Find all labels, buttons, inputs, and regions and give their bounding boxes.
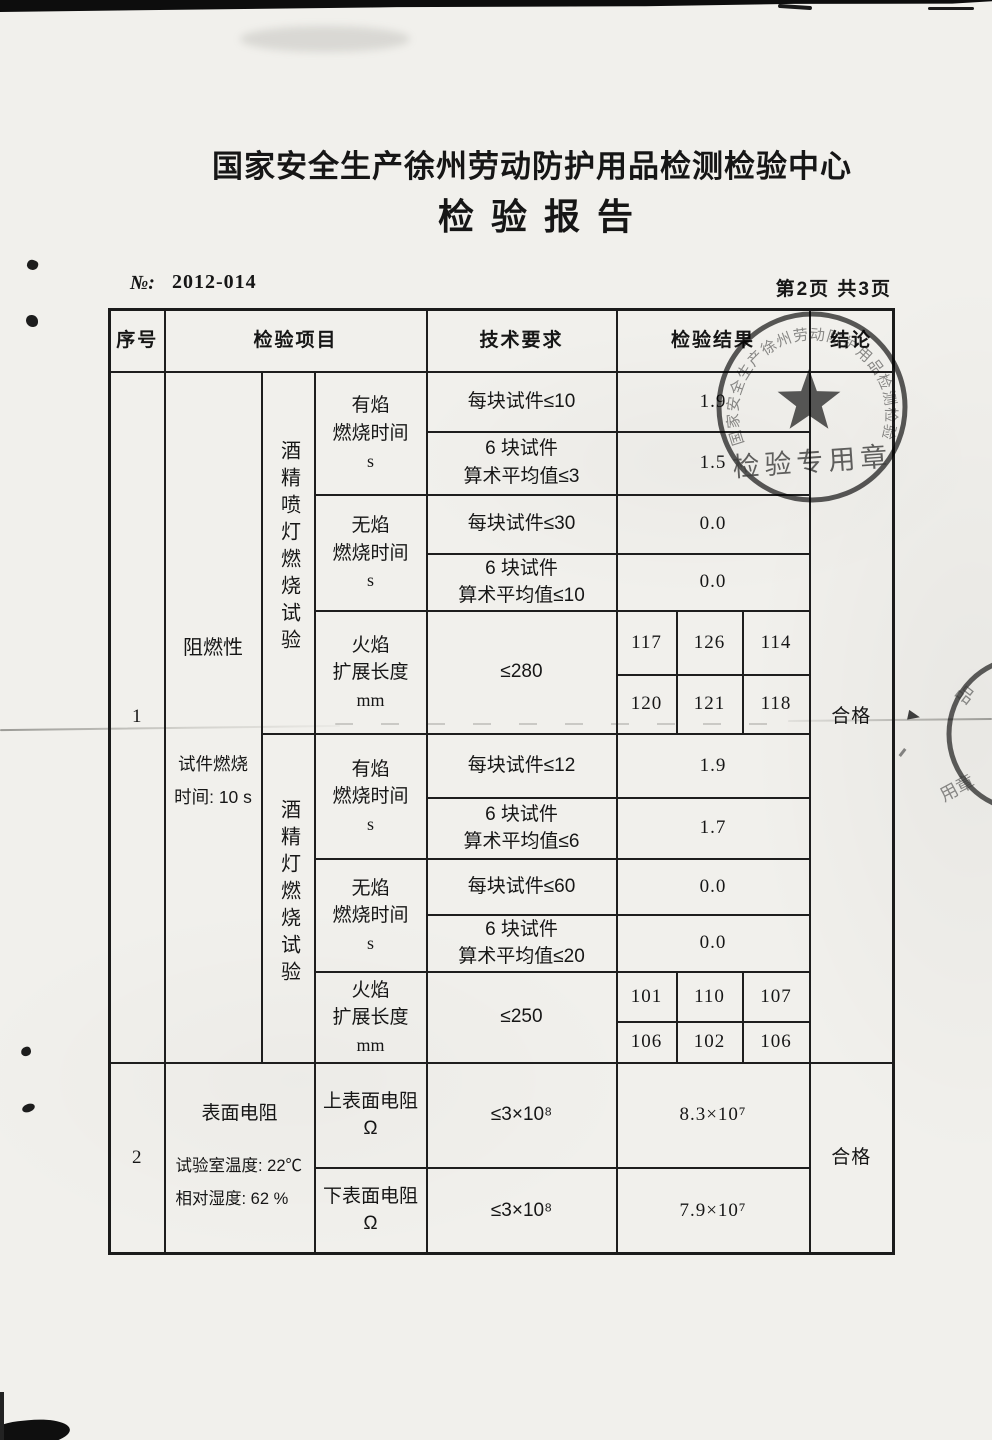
- item-name: 表面电阻: [166, 1100, 314, 1128]
- scan-corner-mark: [0, 1416, 71, 1440]
- result-cell: 1.9: [617, 734, 810, 798]
- param-line: 扩展长度: [316, 659, 426, 687]
- test-group-cell: 酒精灯燃烧试验: [262, 734, 315, 1063]
- requirement-cell: 6 块试件 算术平均值≤6: [427, 798, 617, 859]
- result-cell: 7.9×10⁷: [617, 1168, 810, 1254]
- param-cell: 火焰 扩展长度 mm: [315, 972, 427, 1063]
- requirement-cell: ≤3×10⁸: [427, 1063, 617, 1168]
- requirement-line: 6 块试件: [428, 555, 616, 583]
- param-cell: 无焰 燃烧时间 s: [315, 859, 427, 972]
- item-note-line: 试件燃烧: [166, 748, 261, 781]
- requirement-line: 算术平均值≤6: [428, 828, 616, 856]
- result-cell: 114: [743, 611, 810, 675]
- requirement-cell: ≤280: [427, 611, 617, 734]
- crease-ink-mark: [907, 710, 921, 722]
- param-cell: 无焰 燃烧时间 s: [315, 495, 427, 611]
- param-unit: Ω: [316, 1210, 426, 1238]
- item-note: 试件燃烧 时间: 10 s: [166, 748, 261, 815]
- scan-speck: [21, 1102, 36, 1114]
- test-group-cell: 酒精喷灯燃烧试验: [262, 372, 315, 734]
- scan-speck: [26, 315, 38, 327]
- edge-partial-stamp: 品 用章: [930, 642, 992, 834]
- stamp-star-icon: [778, 369, 841, 429]
- header-seq: 序号: [110, 310, 165, 372]
- scan-edge-artifact: [928, 7, 974, 10]
- result-cell: 121: [677, 675, 743, 734]
- item-content: 阻燃性 试件燃烧 时间: 10 s: [166, 376, 261, 1059]
- param-cell: 有焰 燃烧时间 s: [315, 734, 427, 859]
- scanned-report-page: 国家安全生产徐州劳动防护用品检测检验中心 检验报告 №: 2012-014 第2…: [0, 0, 992, 1440]
- requirement-cell: 每块试件≤10: [427, 372, 617, 432]
- inspection-stamp: 国家安全生产徐州劳动防护用品检测检验中心 检验专用章: [697, 295, 929, 523]
- stamp-bottom-text: 检验专用章: [732, 441, 894, 482]
- result-cell: 101: [617, 972, 677, 1022]
- scan-speck: [20, 1046, 32, 1057]
- param-line: 扩展长度: [316, 1004, 426, 1032]
- result-cell: 106: [617, 1022, 677, 1063]
- scan-edge-artifact: [778, 4, 812, 10]
- table-row: 2 表面电阻 试验室温度: 22℃ 相对湿度: 62 % 上表面电阻 Ω ≤3×…: [110, 1063, 894, 1168]
- result-cell: 102: [677, 1022, 743, 1063]
- scan-corner-mark: [0, 1392, 4, 1440]
- param-line: 下表面电阻: [316, 1183, 426, 1211]
- header-requirement: 技术要求: [427, 310, 617, 372]
- item-name: 阻燃性: [166, 634, 261, 663]
- item-cell-1: 阻燃性 试件燃烧 时间: 10 s: [165, 372, 262, 1063]
- requirement-cell: 6 块试件 算术平均值≤20: [427, 915, 617, 972]
- requirement-line: 算术平均值≤10: [428, 582, 616, 610]
- param-unit: mm: [316, 1032, 426, 1058]
- param-line: 无焰: [316, 512, 426, 540]
- requirement-line: 算术平均值≤20: [428, 943, 616, 971]
- requirement-cell: 每块试件≤30: [427, 495, 617, 554]
- param-line: 燃烧时间: [316, 783, 426, 811]
- result-cell: 106: [743, 1022, 810, 1063]
- requirement-cell: ≤3×10⁸: [427, 1168, 617, 1254]
- param-line: 火焰: [316, 632, 426, 660]
- item-cell-2: 表面电阻 试验室温度: 22℃ 相对湿度: 62 %: [165, 1063, 315, 1254]
- param-unit: s: [316, 567, 426, 593]
- param-unit: s: [316, 448, 426, 474]
- requirement-cell: 每块试件≤12: [427, 734, 617, 798]
- test-group-name: 酒精灯燃烧试验: [274, 799, 303, 988]
- result-cell: 0.0: [617, 915, 810, 972]
- result-cell: 126: [677, 611, 743, 675]
- requirement-cell: ≤250: [427, 972, 617, 1063]
- test-group-name: 酒精喷灯燃烧试验: [274, 440, 303, 656]
- item-note: 试验室温度: 22℃ 相对湿度: 62 %: [176, 1150, 303, 1216]
- param-unit: s: [316, 930, 426, 956]
- requirement-cell: 6 块试件 算术平均值≤3: [427, 432, 617, 495]
- param-cell: 上表面电阻 Ω: [315, 1063, 427, 1168]
- organization-title: 国家安全生产徐州劳动防护用品检测检验中心: [140, 141, 924, 186]
- edge-stamp-bottom-text: 用章: [936, 771, 977, 806]
- result-cell: 117: [617, 611, 677, 675]
- param-line: 燃烧时间: [316, 902, 426, 930]
- requirement-cell: 6 块试件 算术平均值≤10: [427, 554, 617, 611]
- requirement-line: 算术平均值≤3: [428, 463, 616, 491]
- crease-ink-mark: [899, 748, 907, 757]
- report-no-value: 2012-014: [172, 271, 257, 294]
- result-cell: 118: [743, 675, 810, 734]
- scan-edge-artifact: [0, 0, 992, 13]
- result-cell: 0.0: [617, 859, 810, 915]
- param-line: 燃烧时间: [316, 540, 426, 568]
- result-cell: 120: [617, 675, 677, 734]
- param-cell: 下表面电阻 Ω: [315, 1168, 427, 1254]
- requirement-cell: 每块试件≤60: [427, 859, 617, 915]
- item-note-line: 试验室温度: 22℃: [176, 1150, 303, 1183]
- item-note-line: 时间: 10 s: [166, 781, 261, 814]
- scan-smudge: [240, 26, 410, 52]
- param-line: 火焰: [316, 977, 426, 1005]
- param-unit: s: [316, 811, 426, 837]
- conclusion-cell-2: 合格: [810, 1063, 894, 1254]
- param-unit: Ω: [316, 1115, 426, 1143]
- scan-speck: [26, 258, 40, 271]
- param-cell: 火焰 扩展长度 mm: [315, 611, 427, 734]
- seq-cell-2: 2: [110, 1063, 165, 1254]
- param-unit: mm: [316, 687, 426, 713]
- report-title: 检验报告: [152, 188, 936, 240]
- result-cell: 0.0: [617, 554, 810, 611]
- seq-cell-1: 1: [110, 372, 165, 1063]
- param-line: 有焰: [316, 392, 426, 420]
- requirement-line: 6 块试件: [428, 916, 616, 944]
- param-line: 上表面电阻: [316, 1088, 426, 1116]
- param-line: 有焰: [316, 756, 426, 784]
- requirement-line: 6 块试件: [428, 801, 616, 829]
- param-line: 燃烧时间: [316, 420, 426, 448]
- result-cell: 1.7: [617, 798, 810, 859]
- item-content: 表面电阻 试验室温度: 22℃ 相对湿度: 62 %: [166, 1064, 314, 1251]
- result-cell: 110: [677, 972, 743, 1022]
- param-cell: 有焰 燃烧时间 s: [315, 372, 427, 495]
- result-cell: 8.3×10⁷: [617, 1063, 810, 1168]
- header-item: 检验项目: [165, 310, 427, 372]
- requirement-line: 6 块试件: [428, 435, 616, 463]
- item-note-line: 相对湿度: 62 %: [176, 1183, 303, 1216]
- report-no-label: №:: [130, 272, 155, 295]
- param-line: 无焰: [316, 875, 426, 903]
- result-cell: 107: [743, 972, 810, 1022]
